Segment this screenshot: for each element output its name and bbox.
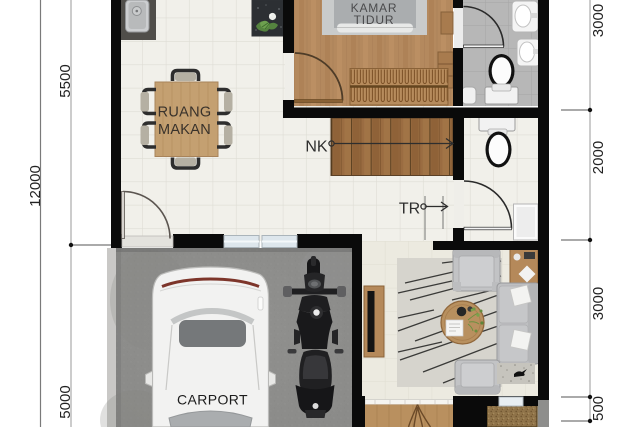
svg-text:RUANG: RUANG xyxy=(158,105,212,121)
svg-text:5000: 5000 xyxy=(57,385,74,418)
svg-text:3000: 3000 xyxy=(590,287,607,320)
svg-text:TR: TR xyxy=(399,201,420,218)
svg-text:CARPORT: CARPORT xyxy=(177,392,248,408)
svg-text:2000: 2000 xyxy=(590,141,607,174)
svg-text:500: 500 xyxy=(590,396,607,421)
svg-text:NK: NK xyxy=(305,139,328,156)
svg-text:5500: 5500 xyxy=(57,64,74,97)
svg-text:MAKAN: MAKAN xyxy=(158,122,211,138)
svg-text:12000: 12000 xyxy=(27,165,44,207)
svg-text:TIDUR: TIDUR xyxy=(354,13,395,27)
svg-text:3000: 3000 xyxy=(590,4,607,37)
